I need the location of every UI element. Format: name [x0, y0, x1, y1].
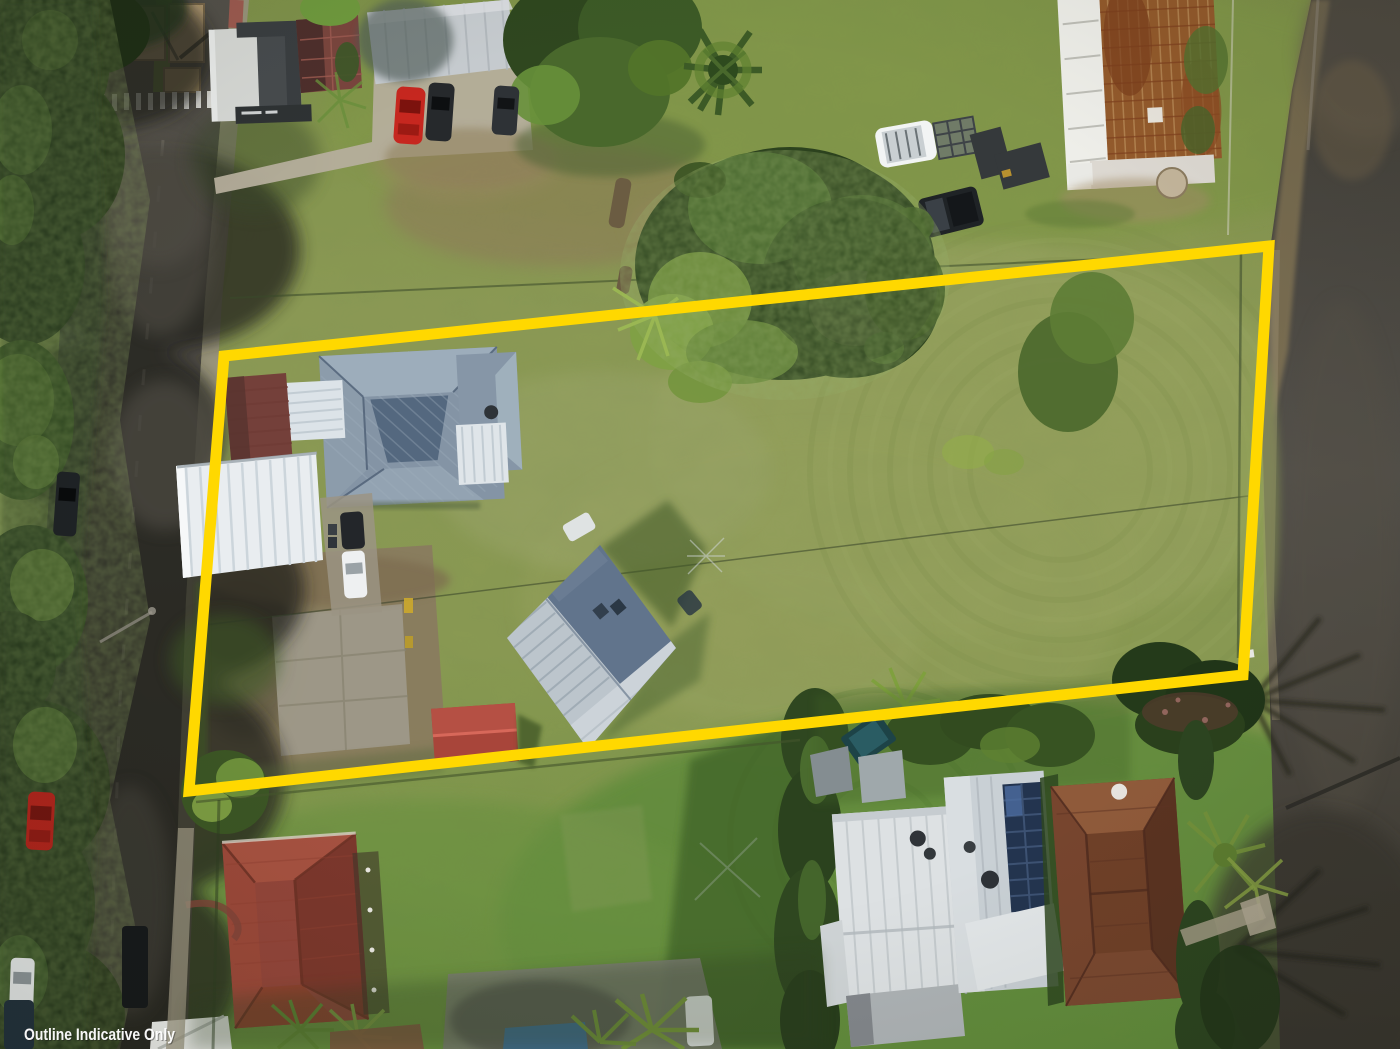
svg-text:Outline Indicative Only: Outline Indicative Only — [24, 1026, 176, 1044]
